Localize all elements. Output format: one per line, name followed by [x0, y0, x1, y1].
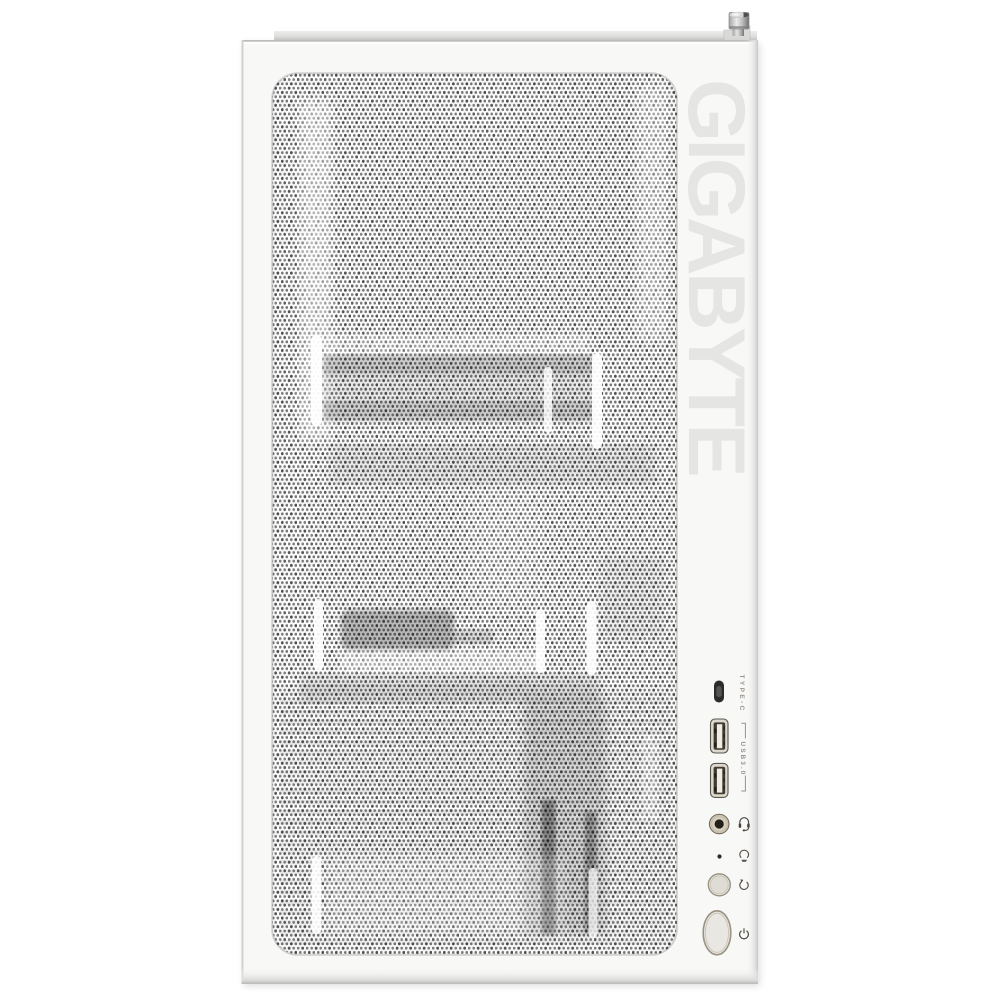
svg-text:GIGABYTE: GIGABYTE	[671, 79, 761, 475]
svg-text:USB3.0: USB3.0	[739, 742, 746, 777]
svg-text:TYPE-C: TYPE-C	[738, 675, 745, 713]
